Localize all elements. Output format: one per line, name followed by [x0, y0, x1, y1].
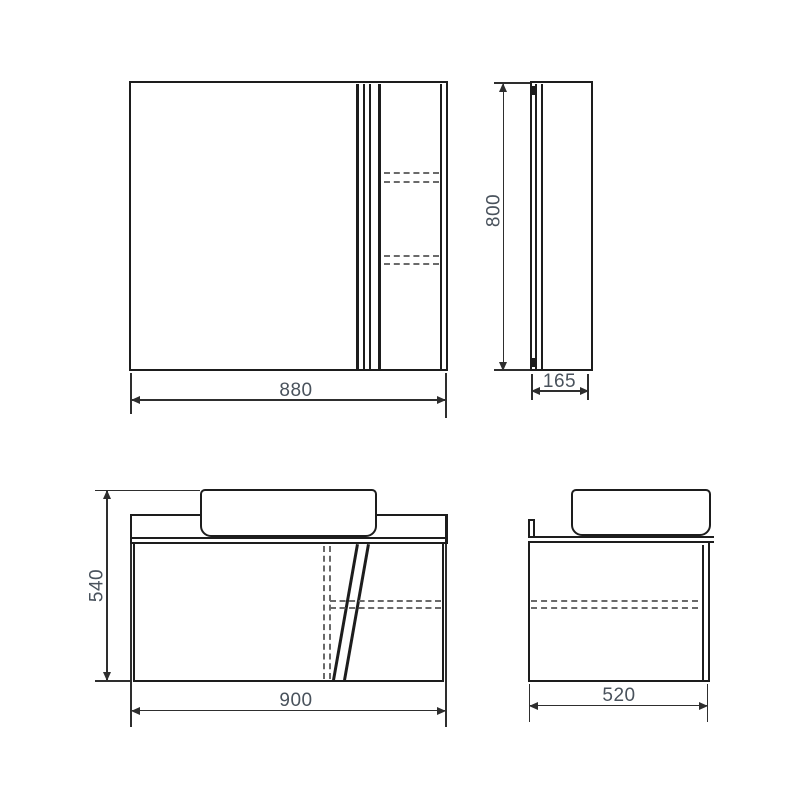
extension-line — [130, 544, 132, 727]
dimension-label-vanity-height: 540 — [89, 564, 106, 608]
dim-arrow-right — [699, 702, 708, 710]
mirror-divider-line — [369, 84, 372, 369]
washbasin-front — [200, 489, 377, 537]
mirror-divider-line — [363, 84, 366, 369]
hinge-notch-bottom — [531, 358, 537, 367]
dim-arrow-left — [529, 702, 538, 710]
dimension-label-mirror-width: 880 — [274, 382, 318, 399]
shelf-dashed-line — [531, 600, 698, 602]
dim-arrow-down — [499, 362, 507, 371]
drawing-canvas: 880 800 165 — [0, 0, 800, 800]
dim-arrow-left — [131, 396, 140, 404]
extension-line — [95, 490, 200, 492]
dim-arrow-right — [437, 707, 446, 715]
extension-line — [445, 544, 447, 727]
mirror-side-outline — [530, 81, 593, 371]
vanity-cabinet-front-outline — [133, 544, 444, 682]
dimension-label-mirror-depth: 165 — [538, 373, 582, 390]
dimension-label-mirror-height: 800 — [486, 189, 503, 233]
dim-arrow-left — [131, 707, 140, 715]
extension-line — [130, 373, 132, 414]
mirror-front-outline — [129, 81, 448, 371]
shelf-dashed-line — [330, 600, 441, 602]
dimension-label-vanity-depth: 520 — [597, 687, 641, 704]
washbasin-side — [571, 489, 711, 536]
shelf-dashed-line — [384, 255, 439, 257]
shelf-dashed-line — [384, 181, 439, 183]
dim-arrow-down — [103, 672, 111, 681]
drain-dashed-line — [323, 546, 325, 679]
door-right-edge-line — [440, 84, 443, 369]
drain-dashed-line — [329, 546, 331, 679]
shelf-dashed-line — [384, 263, 439, 265]
shelf-dashed-line — [531, 607, 698, 609]
countertop-band-side — [528, 536, 715, 543]
shelf-dashed-line — [330, 607, 441, 609]
dim-arrow-up — [499, 83, 507, 92]
dim-arrow-up — [103, 490, 111, 499]
door-left-edge-line — [378, 84, 382, 369]
dim-arrow-right — [437, 396, 446, 404]
mirror-divider-line — [356, 84, 359, 369]
back-panel-line — [702, 545, 704, 680]
shelf-dashed-line — [384, 172, 439, 174]
extension-line — [95, 680, 132, 682]
mirror-panel-line — [535, 84, 537, 369]
countertop-band — [130, 537, 448, 544]
dimension-label-vanity-width: 900 — [274, 692, 318, 709]
mirror-panel-line — [541, 84, 543, 369]
vanity-cabinet-side-outline — [528, 543, 710, 682]
hinge-notch-top — [531, 86, 537, 95]
upstand-side — [528, 519, 535, 537]
